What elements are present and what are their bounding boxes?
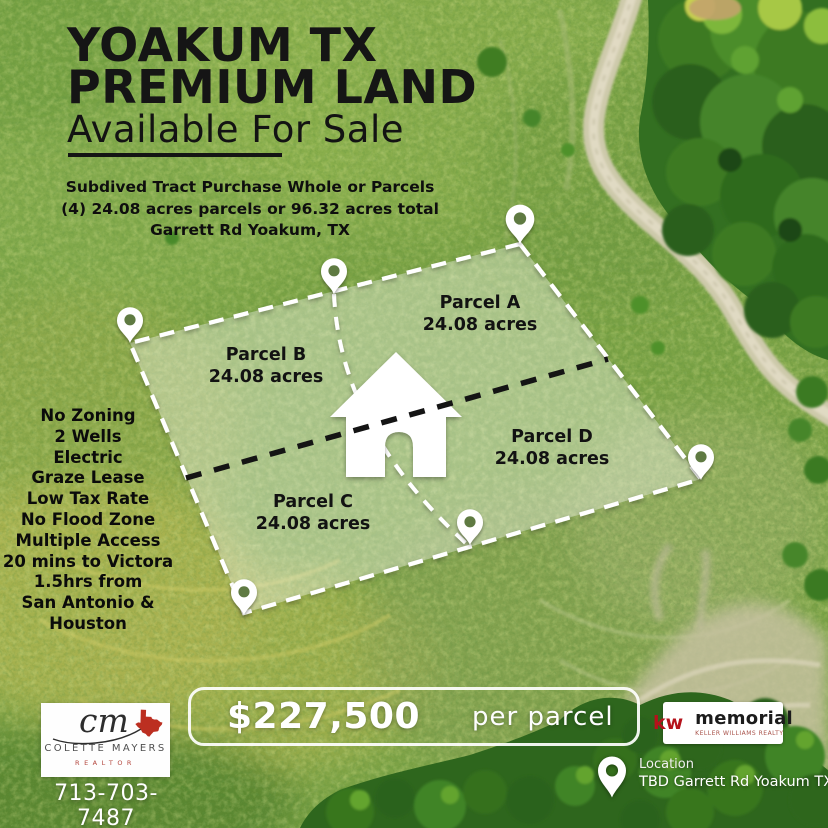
- title-line-2: PREMIUM LAND: [67, 64, 477, 110]
- feature-item: Multiple Access: [2, 531, 174, 552]
- parcel-size: 24.08 acres: [495, 448, 610, 470]
- subtitle: Available For Sale: [67, 108, 404, 151]
- agent-logo-card: cm COLETTE MAYERS REALTOR: [41, 703, 170, 777]
- feature-item: 1.5hrs from: [2, 572, 174, 593]
- tract-description-line: Subdived Tract Purchase Whole or Parcels: [0, 177, 500, 199]
- location-block: Location TBD Garrett Rd Yoakum TX: [598, 756, 828, 798]
- parcel-size: 24.08 acres: [256, 513, 371, 535]
- agent-name: COLETTE MAYERS: [41, 743, 170, 754]
- feature-item: Low Tax Rate: [2, 489, 174, 510]
- feature-item: No Zoning: [2, 406, 174, 427]
- price-amount: $227,500: [227, 696, 420, 737]
- agent-role: REALTOR: [41, 759, 170, 767]
- agent-phone: 713-703-7487: [30, 781, 182, 828]
- parcel-size: 24.08 acres: [423, 314, 538, 336]
- tract-description-line: Garrett Rd Yoakum, TX: [0, 220, 500, 242]
- parcel-label-d: Parcel D 24.08 acres: [495, 426, 610, 470]
- features-list: No Zoning 2 Wells Electric Graze Lease L…: [2, 406, 174, 635]
- location-pin-icon: [598, 756, 626, 798]
- kw-office-name: memorial: [695, 710, 793, 728]
- feature-item: 20 mins to Victora: [2, 552, 174, 573]
- feature-item: No Flood Zone: [2, 510, 174, 531]
- parcel-label-a: Parcel A 24.08 acres: [423, 292, 538, 336]
- parcel-label-b: Parcel B 24.08 acres: [209, 344, 324, 388]
- feature-item: 2 Wells: [2, 427, 174, 448]
- feature-item: Electric: [2, 448, 174, 469]
- location-address: TBD Garrett Rd Yoakum TX: [639, 773, 828, 792]
- feature-item: Houston: [2, 614, 174, 635]
- parcel-name: Parcel A: [423, 292, 538, 314]
- tract-description-line: (4) 24.08 acres parcels or 96.32 acres t…: [0, 199, 500, 221]
- location-label: Location: [639, 756, 828, 773]
- price-banner: $227,500 per parcel: [188, 687, 640, 746]
- land-sale-flyer: YOAKUM TX PREMIUM LAND Available For Sal…: [0, 0, 828, 828]
- brokerage-logo-card: kw memorial KELLER WILLIAMS REALTY: [663, 702, 783, 744]
- parcel-name: Parcel C: [256, 491, 371, 513]
- tract-description: Subdived Tract Purchase Whole or Parcels…: [0, 177, 500, 242]
- kw-abbr: kw: [653, 714, 683, 733]
- parcel-name: Parcel B: [209, 344, 324, 366]
- price-unit: per parcel: [472, 702, 614, 732]
- parcel-label-c: Parcel C 24.08 acres: [256, 491, 371, 535]
- title-underline: [68, 153, 282, 157]
- agent-monogram: cm: [79, 701, 129, 740]
- feature-item: Graze Lease: [2, 468, 174, 489]
- parcel-size: 24.08 acres: [209, 366, 324, 388]
- parcel-name: Parcel D: [495, 426, 610, 448]
- texas-icon: [134, 709, 164, 737]
- feature-item: San Antonio &: [2, 593, 174, 614]
- kw-company-name: KELLER WILLIAMS REALTY: [695, 730, 783, 737]
